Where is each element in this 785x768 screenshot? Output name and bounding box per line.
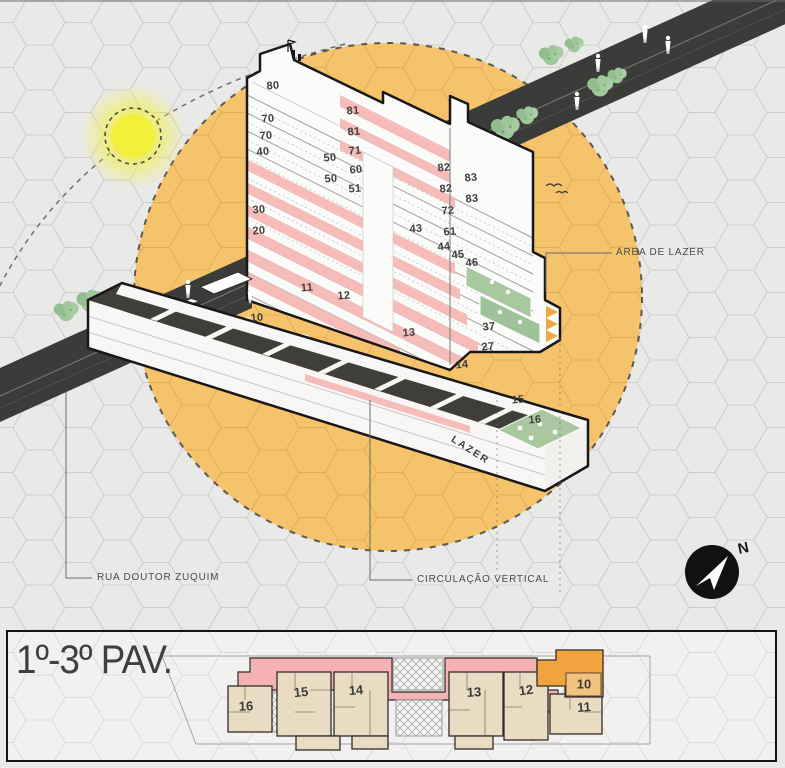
plan-unit-13 (449, 672, 503, 736)
stair-accent (546, 306, 558, 342)
top-border (0, 0, 785, 2)
floor-range-title: 1º-3º PAV. (16, 638, 172, 683)
axonometric-scene (0, 0, 785, 630)
label-area-de-lazer: ÁREA DE LAZER (616, 247, 705, 258)
plan-unit-number[interactable]: 13 (466, 684, 481, 700)
plan-unit-number[interactable]: 12 (518, 682, 534, 699)
north-arrow-icon (685, 545, 739, 599)
label-circulacao-vertical: CIRCULAÇÃO VERTICAL (417, 574, 549, 585)
architectural-diagram: ÁREA DE LAZER RUA DOUTOR ZUQUIM CIRCULAÇ… (0, 0, 785, 768)
floorplan-panel: 1º-3º PAV. (6, 630, 777, 762)
plan-unit-15 (277, 672, 331, 736)
plan-unit-number[interactable]: 11 (577, 699, 592, 715)
plan-unit-number[interactable]: 14 (348, 682, 363, 698)
elevator-core (363, 152, 393, 332)
plan-unit-number[interactable]: 15 (293, 684, 309, 700)
plan-unit-number[interactable]: 16 (239, 698, 254, 713)
plan-unit-number[interactable]: 10 (577, 677, 591, 692)
label-rua-doutor-zuquim: RUA DOUTOR ZUQUIM (97, 572, 219, 583)
